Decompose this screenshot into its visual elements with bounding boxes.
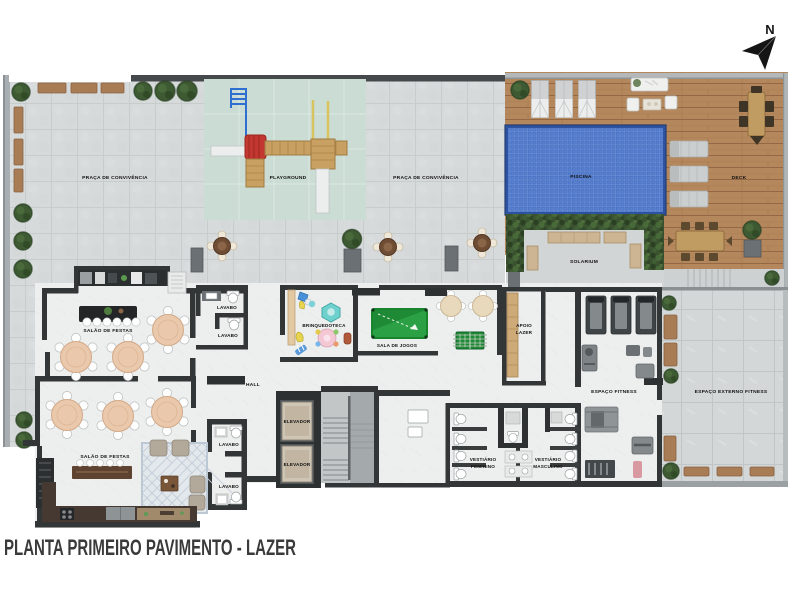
svg-text:SALA DE JOGOS: SALA DE JOGOS [377, 343, 417, 348]
svg-text:PLAYGROUND: PLAYGROUND [270, 175, 307, 181]
svg-text:ELEVADOR: ELEVADOR [284, 419, 311, 424]
svg-text:BRINQUEDOTECA: BRINQUEDOTECA [302, 323, 346, 328]
svg-text:SALÃO DE FESTAS: SALÃO DE FESTAS [83, 327, 133, 334]
svg-text:ESPAÇO EXTERNO FITNESS: ESPAÇO EXTERNO FITNESS [695, 389, 768, 395]
svg-text:PISCINA: PISCINA [570, 174, 592, 180]
svg-text:ESPAÇO FITNESS: ESPAÇO FITNESS [591, 389, 637, 395]
svg-text:DECK: DECK [732, 175, 747, 181]
svg-text:HALL: HALL [246, 382, 260, 388]
svg-text:SALÃO DE FESTAS: SALÃO DE FESTAS [80, 453, 130, 460]
svg-text:SOLARIUM: SOLARIUM [570, 259, 598, 265]
svg-text:LAVABO: LAVABO [219, 442, 239, 447]
svg-text:FEMININO: FEMININO [471, 464, 495, 469]
svg-text:LAVABO: LAVABO [219, 484, 239, 489]
svg-text:LAZER: LAZER [516, 330, 533, 335]
svg-text:LAVABO: LAVABO [217, 305, 237, 310]
svg-text:APOIO: APOIO [516, 323, 532, 328]
svg-text:VESTIÁRIO: VESTIÁRIO [535, 456, 562, 462]
svg-text:PLANTA PRIMEIRO PAVIMENTO - LA: PLANTA PRIMEIRO PAVIMENTO - LAZER [4, 535, 296, 560]
svg-text:LAVABO: LAVABO [218, 333, 238, 338]
svg-text:VESTIÁRIO: VESTIÁRIO [470, 456, 497, 462]
svg-text:ELEVADOR: ELEVADOR [284, 462, 311, 467]
svg-text:MASCULINO: MASCULINO [533, 464, 563, 469]
svg-text:N: N [765, 22, 774, 37]
